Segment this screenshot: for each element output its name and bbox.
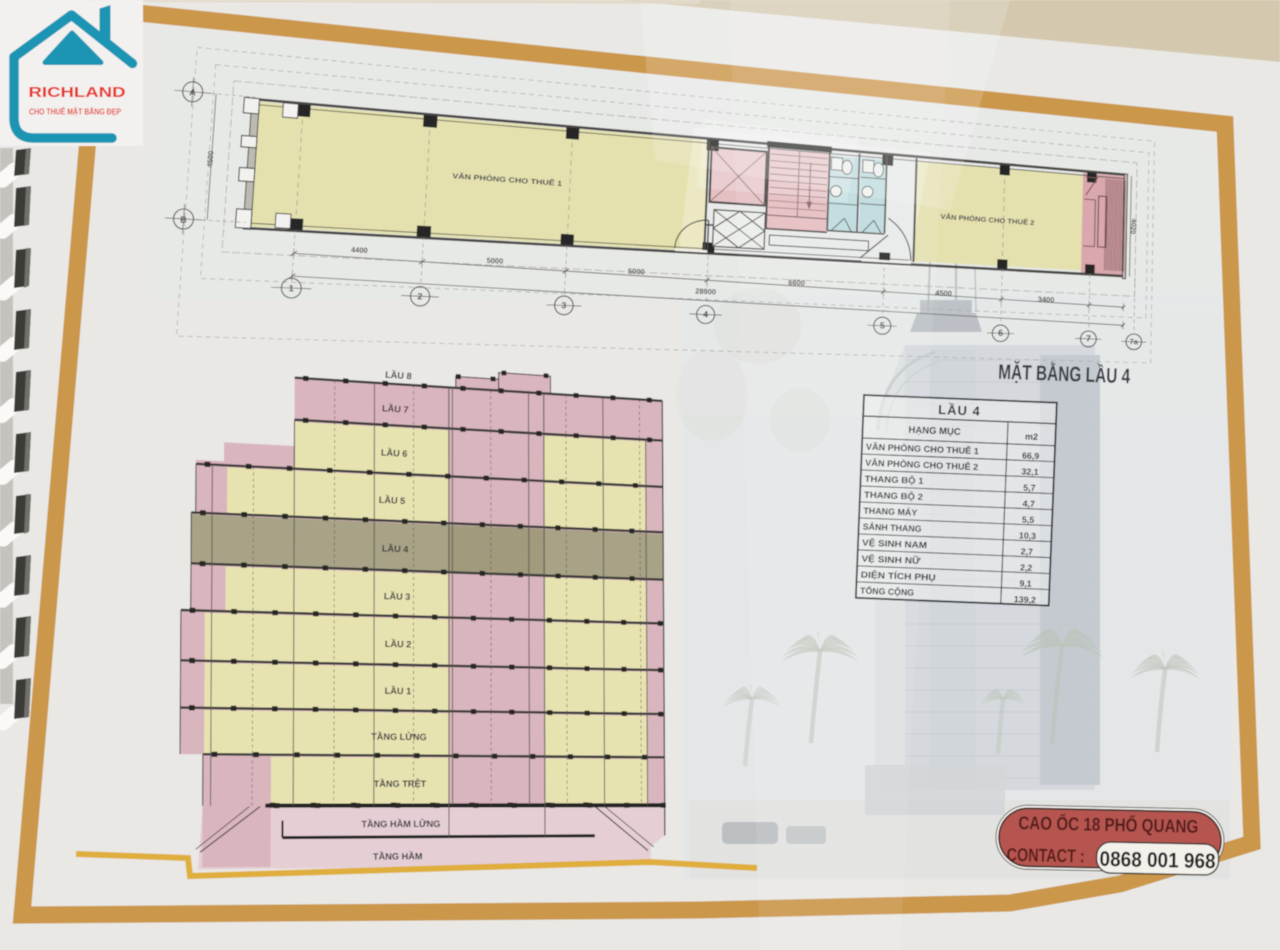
svg-text:RICHLAND: RICHLAND xyxy=(29,85,126,101)
svg-text:CHO THUÊ MẶT BẰNG ĐẸP: CHO THUÊ MẶT BẰNG ĐẸP xyxy=(29,106,121,117)
